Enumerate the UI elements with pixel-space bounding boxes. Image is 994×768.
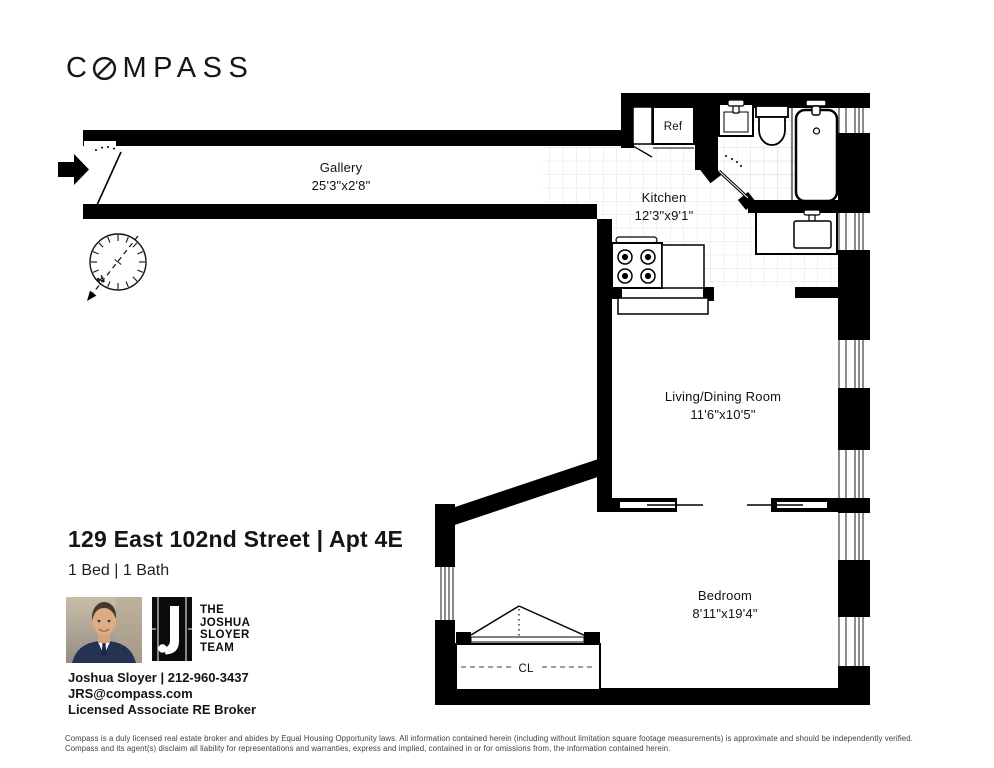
window-bedroom-left — [435, 567, 455, 620]
living-room-label: Living/Dining Room — [665, 389, 781, 404]
team-logo-text: THE JOSHUA SLOYER TEAM — [200, 604, 250, 654]
disclaimer-line-2: Compass and its agent(s) disclaim all li… — [65, 744, 937, 754]
agent-license: Licensed Associate RE Broker — [68, 702, 256, 718]
listing-title: 129 East 102nd Street | Apt 4E — [68, 526, 403, 553]
disclaimer-line-1: Compass is a duly licensed real estate b… — [65, 734, 937, 744]
agent-name-phone: Joshua Sloyer | 212-960-3437 — [68, 670, 256, 686]
agent-photo — [66, 597, 142, 663]
agent-email: JRS@compass.com — [68, 686, 256, 702]
team-line-3: SLOYER — [200, 629, 250, 642]
bedroom-dims: 8'11"x19'4" — [692, 606, 757, 621]
team-line-1: THE — [200, 604, 250, 617]
bedroom-label: Bedroom — [698, 588, 752, 603]
kitchen-dims: 12'3"x9'1" — [635, 208, 694, 223]
kitchen-label: Kitchen — [642, 190, 687, 205]
gallery-label: Gallery — [320, 160, 363, 175]
floorplan-sheet: C MPASS — [0, 0, 994, 768]
living-room-dims: 11'6"x10'5" — [690, 407, 755, 422]
closet-label: CL — [518, 663, 534, 675]
disclaimer: Compass is a duly licensed real estate b… — [65, 734, 937, 753]
beds-baths: 1 Bed | 1 Bath — [68, 562, 403, 580]
ref-label: Ref — [664, 121, 683, 133]
address-block: 129 East 102nd Street | Apt 4E 1 Bed | 1… — [68, 526, 403, 580]
gallery-dims: 25'3"x2'8" — [312, 178, 371, 193]
closet — [456, 606, 600, 690]
sliding-doors — [620, 502, 827, 508]
compass-rose-icon — [87, 234, 146, 301]
entry-door — [58, 146, 121, 205]
team-logo-icon — [152, 597, 192, 661]
agent-contact: Joshua Sloyer | 212-960-3437 JRS@compass… — [68, 670, 256, 718]
agent-badges: THE JOSHUA SLOYER TEAM — [66, 597, 250, 663]
team-line-2: JOSHUA — [200, 617, 250, 630]
north-label: N — [94, 273, 108, 287]
entry-arrow-icon — [58, 154, 89, 185]
team-line-4: TEAM — [200, 642, 250, 655]
